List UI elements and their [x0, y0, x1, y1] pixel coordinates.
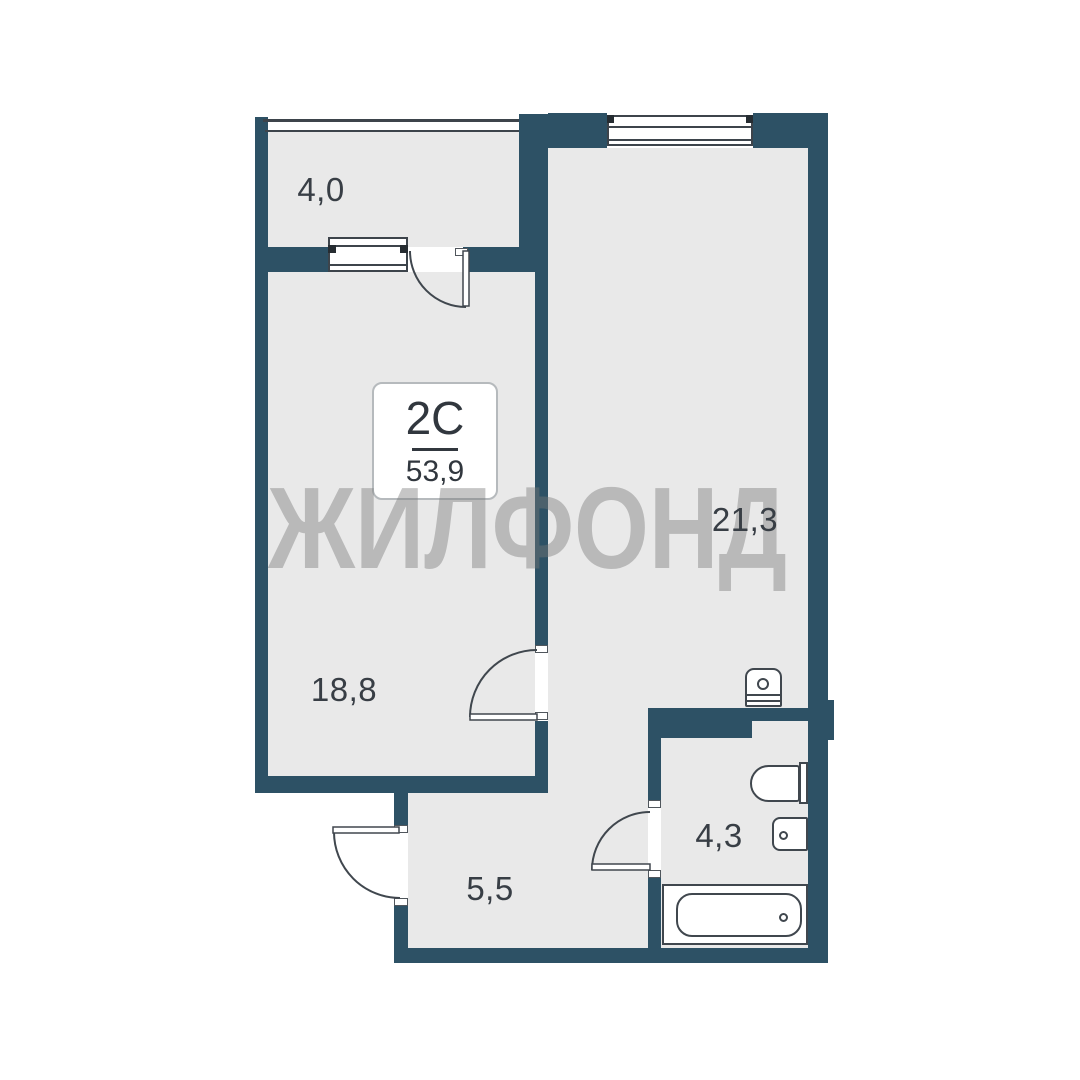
sink	[772, 817, 808, 851]
hallway-area-label: 5,5	[450, 870, 530, 908]
bathroom-door-arc	[592, 812, 650, 870]
entrance-door-arc	[334, 832, 400, 898]
unit-card-divider	[412, 448, 458, 451]
living-room-area-label: 21,3	[695, 501, 795, 539]
balcony-door-leaf	[463, 251, 469, 306]
washing-machine-door	[757, 678, 769, 690]
unit-type-label: 2C	[406, 395, 465, 441]
bathtub-drain	[779, 913, 788, 922]
sink-faucet	[779, 831, 788, 840]
balcony-area-label: 4,0	[281, 171, 361, 209]
toilet-tank	[799, 762, 808, 804]
toilet-bowl	[750, 765, 800, 802]
floor-plan: 2C 53,9 4,0 21,3 18,8 5,5 4,3 ЖИЛФОНД	[0, 0, 1080, 1080]
entrance-door-leaf	[333, 827, 399, 833]
bedroom-area-label: 18,8	[294, 671, 394, 709]
bedroom-door-leaf	[470, 714, 537, 720]
washing-machine-panel-line	[746, 694, 781, 696]
bedroom-door-arc	[470, 650, 537, 717]
balcony-door-arc	[410, 251, 466, 307]
bathroom-door-leaf	[592, 864, 650, 870]
washing-machine-base-line	[746, 700, 781, 702]
bathroom-area-label: 4,3	[679, 817, 759, 855]
